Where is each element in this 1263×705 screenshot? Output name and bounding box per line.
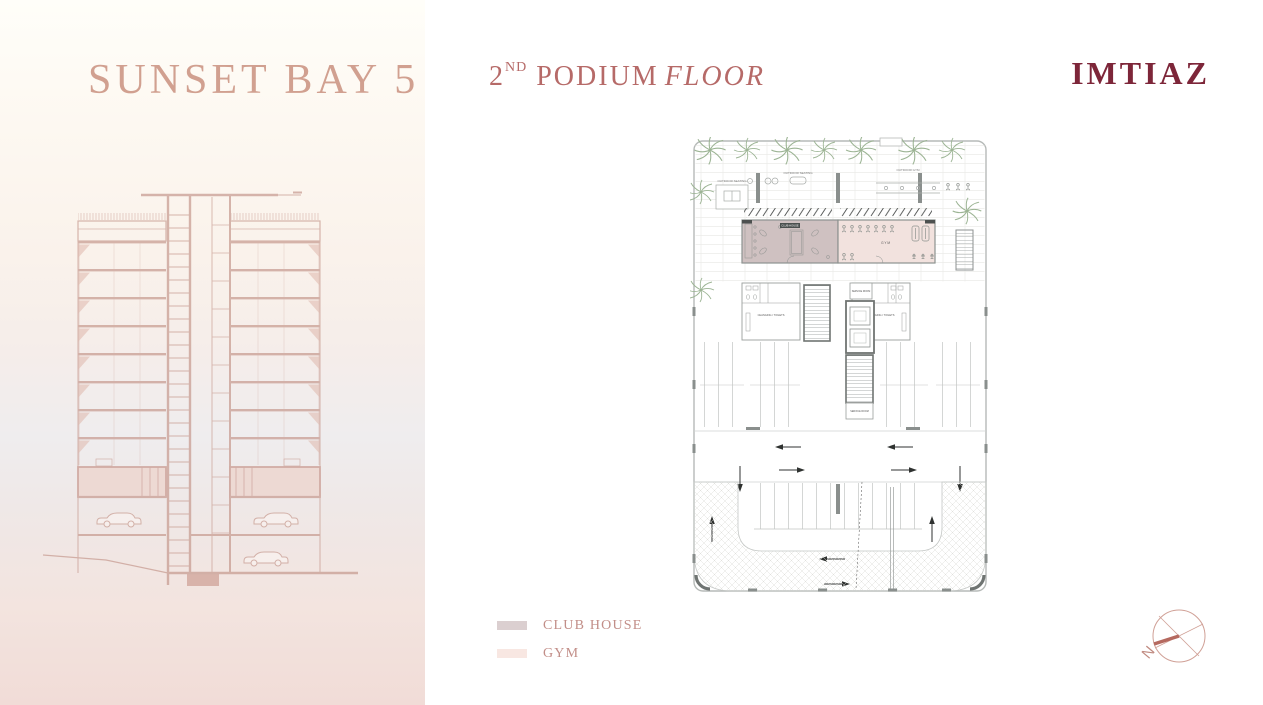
car-icon [244, 552, 288, 566]
elevation-podium-highlight [78, 467, 320, 497]
outdoor-seating-label: OUTDOOR SEATING [717, 179, 747, 183]
north-label: N [1139, 643, 1159, 662]
floor-plan: OUTDOOR SEATING OUTDOOR SEATING OUTDOOR … [690, 137, 990, 597]
compass-needle [1154, 636, 1179, 644]
brand-logo: IMTIAZ [1071, 55, 1210, 92]
floor-number: 2 [489, 61, 505, 92]
brochure-page: { "page": {"background": "#ffffff"}, "le… [0, 0, 1263, 705]
floor-ordinal: ND [505, 60, 527, 75]
legend-item-club-house: CLUB HOUSE [497, 617, 643, 634]
compass-icon: N [1138, 600, 1223, 680]
club-house-label: CLUB HOUSE [781, 224, 799, 228]
legend-label: GYM [543, 646, 579, 662]
legend-item-gym: GYM [497, 645, 643, 662]
club-house-room: CLUB HOUSE [742, 220, 838, 263]
building-elevation-drawing [38, 183, 373, 593]
outdoor-gym-label: OUTDOOR GYM [897, 168, 921, 172]
gym-swatch [497, 649, 527, 658]
legend-label: CLUB HOUSE [543, 618, 643, 634]
floor-title: 2ND PODIUMFLOOR [489, 60, 765, 93]
car-icon [97, 513, 141, 527]
changing-toilets-label: CHANGING / TOILETS [758, 313, 785, 317]
gym-room: GYM [838, 220, 935, 263]
car-icon [254, 513, 298, 527]
service-room-label: SERVICE ROOM [850, 410, 869, 413]
service-room-label: SERVICE ROOM [852, 290, 871, 293]
club-house-swatch [497, 621, 527, 630]
floor-word: PODIUM [536, 61, 658, 92]
terrace-stairs [956, 230, 973, 270]
legend: CLUB HOUSE GYM [497, 617, 643, 673]
elevation-core [141, 192, 302, 587]
elevation-parking-levels [43, 497, 358, 573]
project-title: SUNSET BAY 5 [88, 56, 419, 104]
outdoor-seating-label: OUTDOOR SEATING [783, 171, 813, 175]
left-panel: SUNSET BAY 5 [0, 0, 425, 705]
floor-word-italic: FLOOR [665, 61, 765, 92]
gym-label: GYM [881, 241, 891, 245]
